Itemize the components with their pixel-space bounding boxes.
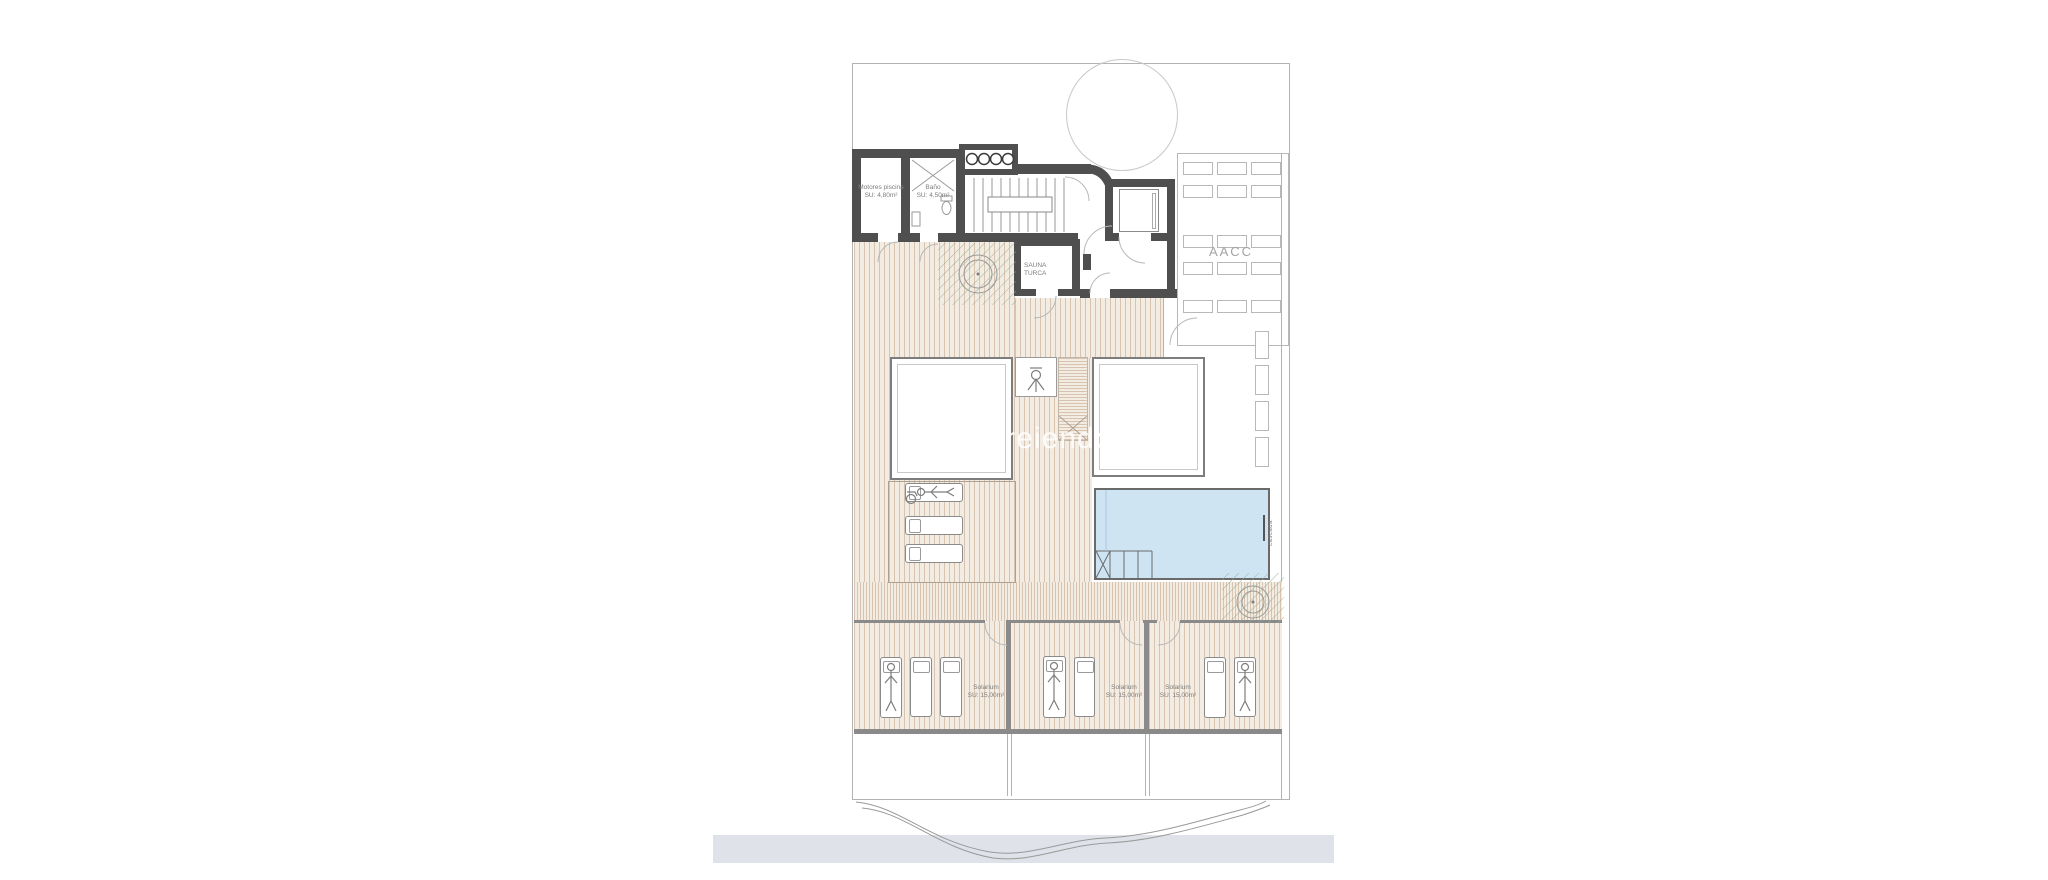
sun-lounger xyxy=(910,657,932,717)
outdoor-shower xyxy=(1015,357,1057,397)
sun-lounger xyxy=(1204,657,1226,718)
skylight-room-1 xyxy=(890,357,1013,480)
solarium-label-3: Solarium SU: 15,00m² xyxy=(1152,684,1204,701)
wall xyxy=(852,233,878,242)
aacc-louver xyxy=(1183,262,1213,275)
sun-lounger xyxy=(880,657,902,718)
room-area: SU: 15,00m² xyxy=(1152,692,1204,700)
aacc-louver xyxy=(1183,185,1213,198)
aacc-label: AACC xyxy=(1196,244,1266,259)
aacc-louver xyxy=(1251,262,1281,275)
room-name: SAUNA xyxy=(1024,262,1056,270)
wall xyxy=(956,149,965,242)
sun-lounger xyxy=(1074,657,1095,717)
solarium-label-2: Solarium SU: 15,00m² xyxy=(1098,684,1150,701)
sun-lounger xyxy=(1234,657,1256,717)
boundary-right xyxy=(1289,63,1290,800)
aacc-louver xyxy=(1183,162,1213,175)
sun-lounger xyxy=(940,657,962,717)
aacc-louver xyxy=(1217,162,1247,175)
tree-outline xyxy=(1066,59,1178,171)
aacc-louver xyxy=(1217,185,1247,198)
lounger-pillow xyxy=(1237,661,1254,673)
wall xyxy=(898,233,920,242)
solarium-divider xyxy=(1006,620,1011,732)
deck-upper-left xyxy=(854,242,1015,358)
lounger-pillow xyxy=(909,547,921,561)
room-name: Solarium xyxy=(960,684,1012,692)
sauna-wall xyxy=(1014,239,1080,246)
room-name: TURCA xyxy=(1024,270,1056,278)
lounger-pillow xyxy=(909,486,921,500)
sun-lounger xyxy=(905,483,963,502)
solarium-wall xyxy=(1180,620,1282,623)
deck-band xyxy=(854,582,1282,621)
lounger-pillow xyxy=(1046,660,1063,672)
boundary-top xyxy=(852,63,1290,64)
room-label-sauna: SAUNA TURCA xyxy=(1024,262,1056,279)
elevator-wall xyxy=(1105,179,1175,187)
solar-niche-inner xyxy=(965,150,1012,169)
wall xyxy=(1014,164,1091,174)
room-name: Solarium xyxy=(1098,684,1150,692)
aacc-louver-vertical xyxy=(1255,437,1269,467)
corridor-edge-line xyxy=(1163,298,1164,358)
aacc-louver xyxy=(1217,300,1247,313)
wall xyxy=(852,149,970,158)
room-name: Baño xyxy=(910,184,956,192)
aacc-louver xyxy=(1251,300,1281,313)
aacc-louver-vertical xyxy=(1255,331,1269,359)
boundary-bottom xyxy=(852,799,1290,800)
footer-bar xyxy=(713,835,1334,863)
wall-stub-line xyxy=(1007,734,1008,796)
sauna-wall xyxy=(1014,289,1036,296)
elevator-wall xyxy=(1151,233,1167,241)
sauna-wall xyxy=(1072,239,1080,296)
solarium-wall xyxy=(1008,620,1120,623)
room-area: SU: 4,80m² xyxy=(858,192,904,200)
elevator-wall xyxy=(1105,179,1113,241)
room-name: Solarium xyxy=(1152,684,1204,692)
aacc-louver-vertical xyxy=(1255,401,1269,431)
sauna-wall xyxy=(1058,289,1080,296)
room-area: SU: 15,00m² xyxy=(960,692,1012,700)
pool xyxy=(1094,488,1270,580)
lounger-pillow xyxy=(943,661,960,673)
cascada-feature-mark xyxy=(1263,515,1265,541)
solarium-wall xyxy=(854,620,985,623)
solarium-wall-bottom xyxy=(854,729,1282,734)
lounger-pillow xyxy=(1207,661,1224,673)
solarium-divider xyxy=(1144,620,1149,732)
wall-stub-line xyxy=(1011,734,1012,796)
skylight-room-2 xyxy=(1092,357,1205,477)
aacc-louver xyxy=(1251,162,1281,175)
sun-lounger xyxy=(905,516,963,535)
skylight-room-1-inner xyxy=(897,364,1006,473)
solarium-label-1: Solarium SU: 15,00m² xyxy=(960,684,1012,701)
deck-upper-mid xyxy=(1015,298,1163,358)
wall-stub xyxy=(1083,254,1091,270)
room-label-motores: Motores piscina SU: 4,80m² xyxy=(858,184,904,201)
wall-stub-line xyxy=(1149,734,1150,796)
room-area: SU: 4,50m² xyxy=(910,192,956,200)
aacc-louver xyxy=(1217,262,1247,275)
lounger-pillow xyxy=(883,661,900,673)
elevator-wall xyxy=(1167,179,1175,298)
staircase xyxy=(974,178,1064,232)
lounger-pillow xyxy=(1077,661,1094,673)
sun-lounger xyxy=(1043,656,1066,718)
floor-plan-canvas: Motores piscina SU: 4,80m² Baño SU: 4,50… xyxy=(0,0,2048,880)
lounger-pillow xyxy=(913,661,930,673)
elevator-car-detail xyxy=(1152,193,1156,229)
aacc-louver xyxy=(1183,300,1213,313)
sauna-wall xyxy=(1014,239,1021,296)
room-label-bano: Baño SU: 4,50m² xyxy=(910,184,956,201)
room-name: Motores piscina xyxy=(858,184,904,192)
sun-lounger xyxy=(905,544,963,563)
watermark: areiendo xyxy=(940,422,1160,456)
wall xyxy=(1080,289,1090,298)
elevator-wall xyxy=(1105,233,1119,241)
room-area: SU: 15,00m² xyxy=(1098,692,1150,700)
aacc-louver-vertical xyxy=(1255,365,1269,395)
wall-stub-line xyxy=(1145,734,1146,796)
cascada-label: cascada xyxy=(1268,514,1274,546)
lounger-pillow xyxy=(909,519,921,533)
aacc-louver xyxy=(1251,185,1281,198)
